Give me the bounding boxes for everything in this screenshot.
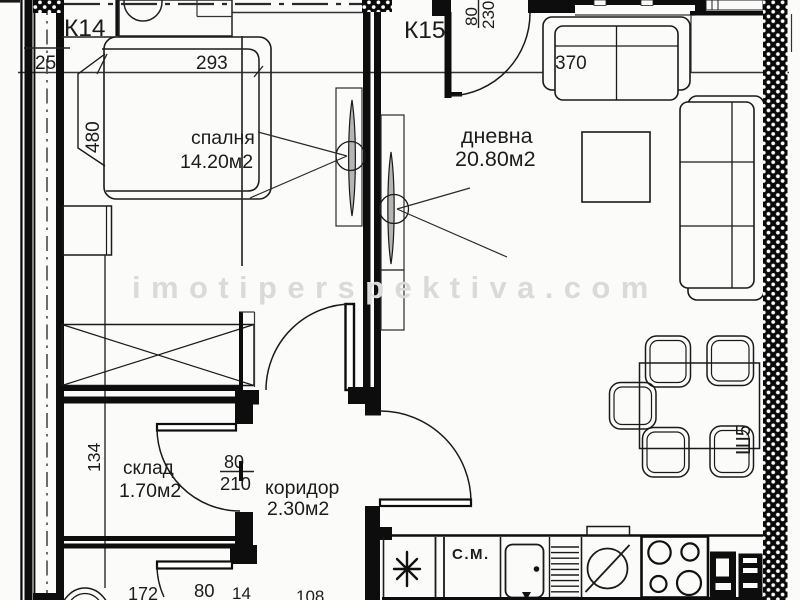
svg-text:134: 134	[84, 443, 104, 472]
svg-text:imotiperspektiva.com: imotiperspektiva.com	[132, 270, 659, 305]
svg-text:480: 480	[83, 121, 104, 153]
svg-text:230: 230	[479, 1, 498, 29]
svg-text:склад: склад	[123, 458, 174, 479]
svg-text:108: 108	[296, 587, 324, 600]
svg-text:1.70м2: 1.70м2	[119, 480, 181, 502]
svg-text:80: 80	[194, 580, 215, 600]
svg-text:К15: К15	[404, 17, 446, 44]
svg-text:коридор: коридор	[265, 477, 340, 499]
svg-text:Ш5: Ш5	[732, 425, 755, 455]
svg-text:14.20м2: 14.20м2	[180, 151, 253, 173]
svg-text:14: 14	[232, 584, 251, 600]
svg-text:172: 172	[128, 584, 158, 600]
svg-text:25: 25	[35, 53, 56, 74]
svg-text:210: 210	[220, 473, 251, 494]
svg-text:2.30м2: 2.30м2	[267, 498, 329, 520]
svg-text:дневна: дневна	[461, 124, 533, 148]
svg-text:20.80м2: 20.80м2	[455, 147, 536, 171]
svg-text:370: 370	[555, 53, 587, 74]
svg-text:293: 293	[196, 53, 228, 74]
svg-text:С.М.: С.М.	[452, 546, 490, 563]
svg-text:К14: К14	[64, 15, 106, 42]
svg-text:спалня: спалня	[191, 127, 255, 149]
